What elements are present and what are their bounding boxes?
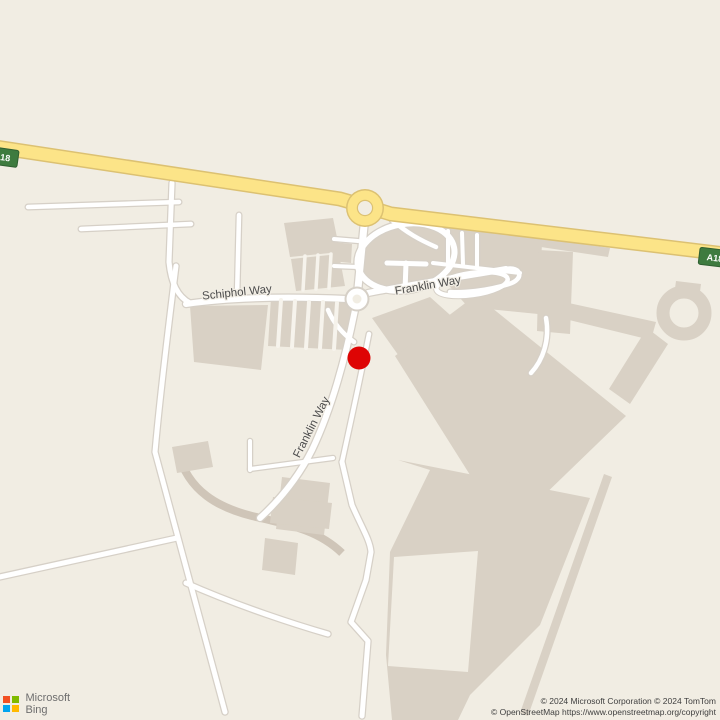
- roundabout-small: [345, 287, 370, 312]
- apron-strip-ne: [537, 250, 573, 334]
- microsoft-logo-icon: [3, 696, 19, 712]
- ms-square-yellow: [12, 705, 19, 712]
- roundabout-small-island: [353, 295, 362, 304]
- brand-product: Bing: [26, 705, 71, 717]
- ms-square-blue: [3, 705, 10, 712]
- brand-company: Microsoft: [26, 693, 71, 705]
- map-viewport[interactable]: Schiphol Way Franklin Way Franklin Way A…: [0, 0, 720, 720]
- apron-south-yard: [388, 551, 478, 672]
- parking-area-west: [190, 305, 268, 370]
- map-attribution: © 2024 Microsoft Corporation © 2024 TomT…: [491, 696, 716, 718]
- map-canvas[interactable]: Schiphol Way Franklin Way Franklin Way A…: [0, 0, 720, 720]
- taxiway-loop-knob: [674, 281, 701, 299]
- building-sw-3: [262, 538, 298, 575]
- ms-square-red: [3, 696, 10, 703]
- attribution-line-1: © 2024 Microsoft Corporation © 2024 TomT…: [491, 696, 716, 707]
- bing-logo[interactable]: Microsoft Bing: [3, 693, 70, 716]
- map-pin-marker[interactable]: [348, 347, 371, 370]
- shield-a18-left-text: A18: [0, 151, 11, 163]
- attribution-line-2[interactable]: © OpenStreetMap https://www.openstreetma…: [491, 707, 716, 718]
- shield-a18-right: A18: [698, 247, 720, 268]
- shield-a18-right-text: A18: [706, 252, 720, 264]
- building-block-small: [332, 242, 352, 263]
- roundabout-large-island: [358, 201, 372, 215]
- ms-square-green: [12, 696, 19, 703]
- bing-logo-text: Microsoft Bing: [26, 693, 71, 716]
